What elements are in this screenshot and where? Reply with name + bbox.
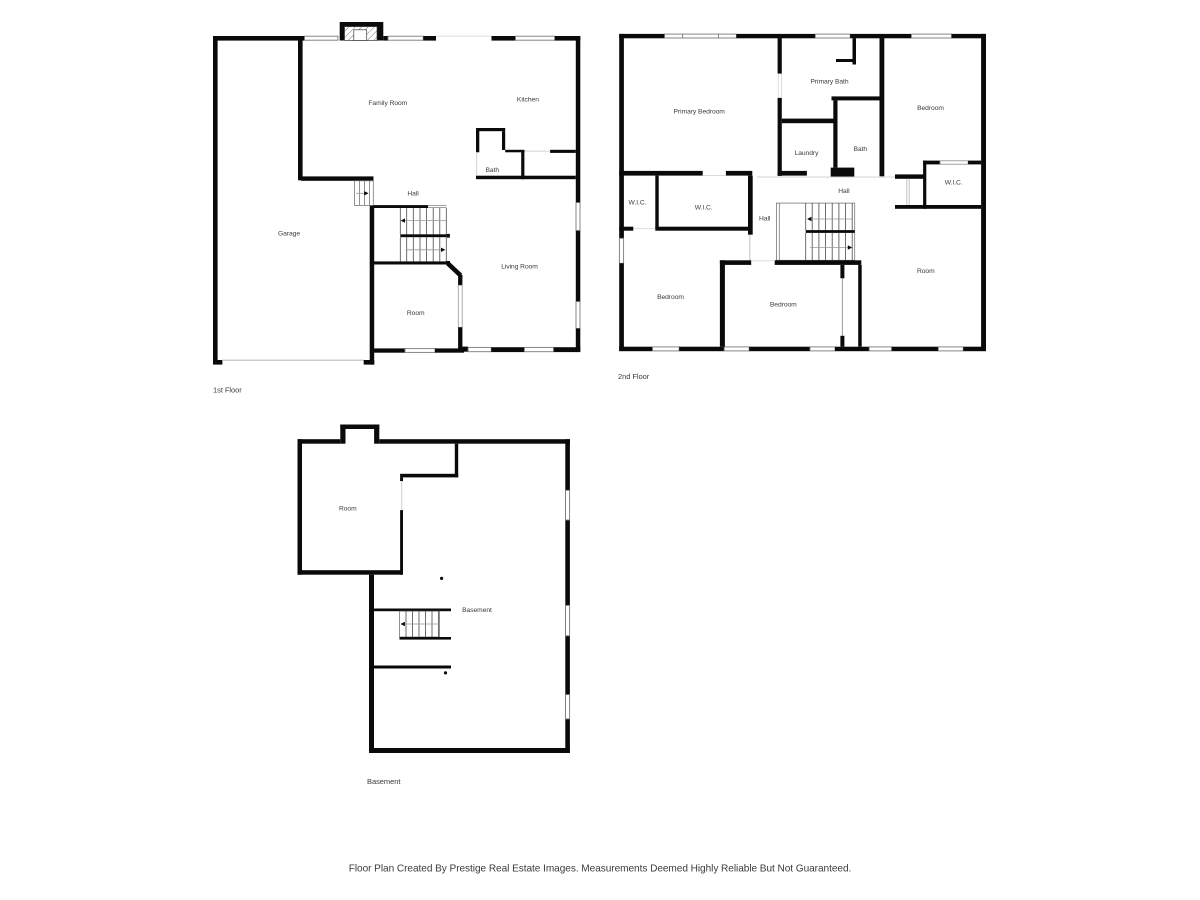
svg-text:W.I.C.: W.I.C. — [695, 204, 713, 211]
svg-text:Bath: Bath — [854, 146, 868, 153]
svg-text:W.I.C.: W.I.C. — [945, 180, 963, 187]
svg-text:1st Floor: 1st Floor — [213, 385, 242, 394]
svg-text:Laundry: Laundry — [795, 150, 820, 157]
svg-text:Bedroom: Bedroom — [770, 302, 797, 309]
svg-text:Bath: Bath — [486, 167, 500, 174]
svg-text:Room: Room — [917, 268, 935, 275]
svg-text:2nd Floor: 2nd Floor — [618, 372, 650, 381]
svg-text:Hall: Hall — [838, 188, 850, 195]
svg-text:Hall: Hall — [407, 191, 419, 198]
svg-text:W.I.C.: W.I.C. — [629, 200, 647, 207]
svg-text:Living Room: Living Room — [501, 264, 538, 271]
svg-text:Floor Plan Created By Prestige: Floor Plan Created By Prestige Real Esta… — [349, 864, 852, 875]
svg-text:Room: Room — [339, 505, 357, 512]
svg-text:Room: Room — [407, 310, 425, 317]
svg-text:Hall: Hall — [759, 216, 771, 223]
svg-text:Bedroom: Bedroom — [917, 105, 944, 112]
svg-text:Primary Bedroom: Primary Bedroom — [674, 108, 726, 115]
svg-text:Basement: Basement — [462, 607, 492, 614]
svg-text:Kitchen: Kitchen — [517, 96, 539, 103]
svg-text:Garage: Garage — [278, 230, 300, 237]
svg-text:Family Room: Family Room — [368, 100, 407, 107]
svg-text:Primary Bath: Primary Bath — [810, 79, 848, 86]
svg-text:Basement: Basement — [367, 777, 401, 786]
svg-text:Bedroom: Bedroom — [657, 294, 684, 301]
